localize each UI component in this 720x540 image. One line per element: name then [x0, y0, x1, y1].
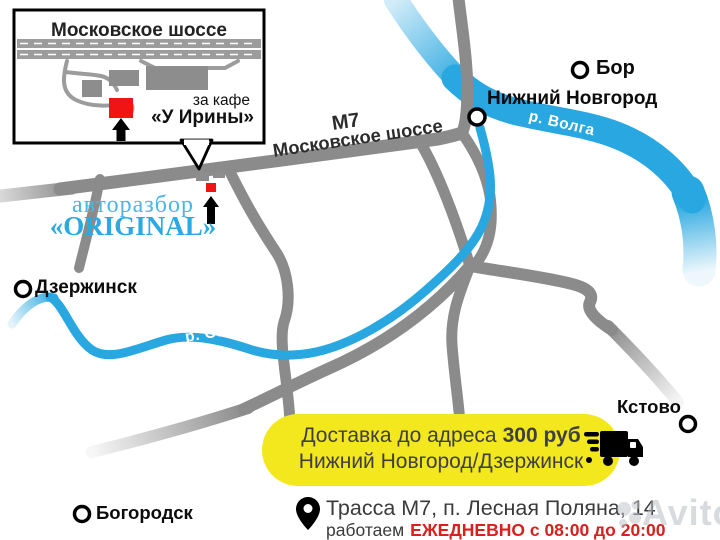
address-line: Трасса М7, п. Лесная Поляна, 14 — [326, 496, 656, 521]
road-kstovo-fade — [608, 326, 678, 402]
map-canvas: Московское шоссе за кафе «У Ирины» М7 Мо… — [0, 0, 720, 540]
work-hours-prefix: работаем — [326, 520, 404, 540]
location-pin-icon — [296, 497, 320, 530]
inset-pointer-mask — [184, 140, 209, 146]
site-target-building — [206, 183, 216, 192]
site-building-1 — [196, 172, 209, 181]
city-marker-kstovo — [681, 417, 696, 432]
inset-building-3 — [146, 66, 208, 90]
city-marker-bor — [573, 63, 588, 78]
city-label-bor: Бор — [596, 57, 635, 80]
watermark-text: Avito — [642, 492, 720, 534]
road-bogorodsk-fade — [92, 408, 248, 452]
city-label-kstovo: Кстово — [617, 396, 681, 418]
site-building-2 — [213, 172, 225, 178]
delivery-line1: Доставка до адреса300 руб — [272, 423, 610, 449]
city-marker-dzerzhinsk — [16, 282, 31, 297]
city-marker-bogorodsk — [75, 507, 90, 522]
inset-title: Московское шоссе — [14, 20, 264, 42]
delivery-banner-text: Доставка до адреса300 руб Нижний Новгоро… — [272, 423, 610, 475]
delivery-price: 300 руб — [503, 424, 581, 447]
delivery-line1-text: Доставка до адреса — [301, 424, 496, 447]
work-hours-line: работаемЕЖЕДНЕВНО с 08:00 до 20:00 — [326, 520, 665, 540]
inset-note-line2: «У Ирины» — [130, 107, 254, 129]
river-oka-head — [12, 297, 54, 324]
river-volga-tail — [688, 192, 700, 270]
delivery-line2: Нижний Новгород/Дзержинск — [272, 449, 610, 475]
city-label-nizhny-novgorod: Нижний Новгород — [487, 88, 657, 110]
inset-building-1 — [82, 80, 102, 97]
business-name-label: «ORIGINAL» — [23, 211, 243, 242]
avito-logo-icon — [616, 496, 642, 530]
city-label-bogorodsk: Богородск — [96, 502, 193, 524]
road-kstovo — [470, 266, 612, 330]
city-marker-nizhny-novgorod — [469, 109, 485, 125]
delivery-truck-icon — [582, 430, 648, 472]
city-label-dzerzhinsk: Дзержинск — [35, 277, 137, 299]
avito-watermark: Avito — [616, 492, 720, 534]
road-site-south — [228, 168, 290, 422]
road-center-diagonal — [420, 142, 470, 266]
delivery-banner: Доставка до адреса300 руб Нижний Новгоро… — [262, 414, 620, 486]
inset-building-2 — [109, 70, 139, 86]
